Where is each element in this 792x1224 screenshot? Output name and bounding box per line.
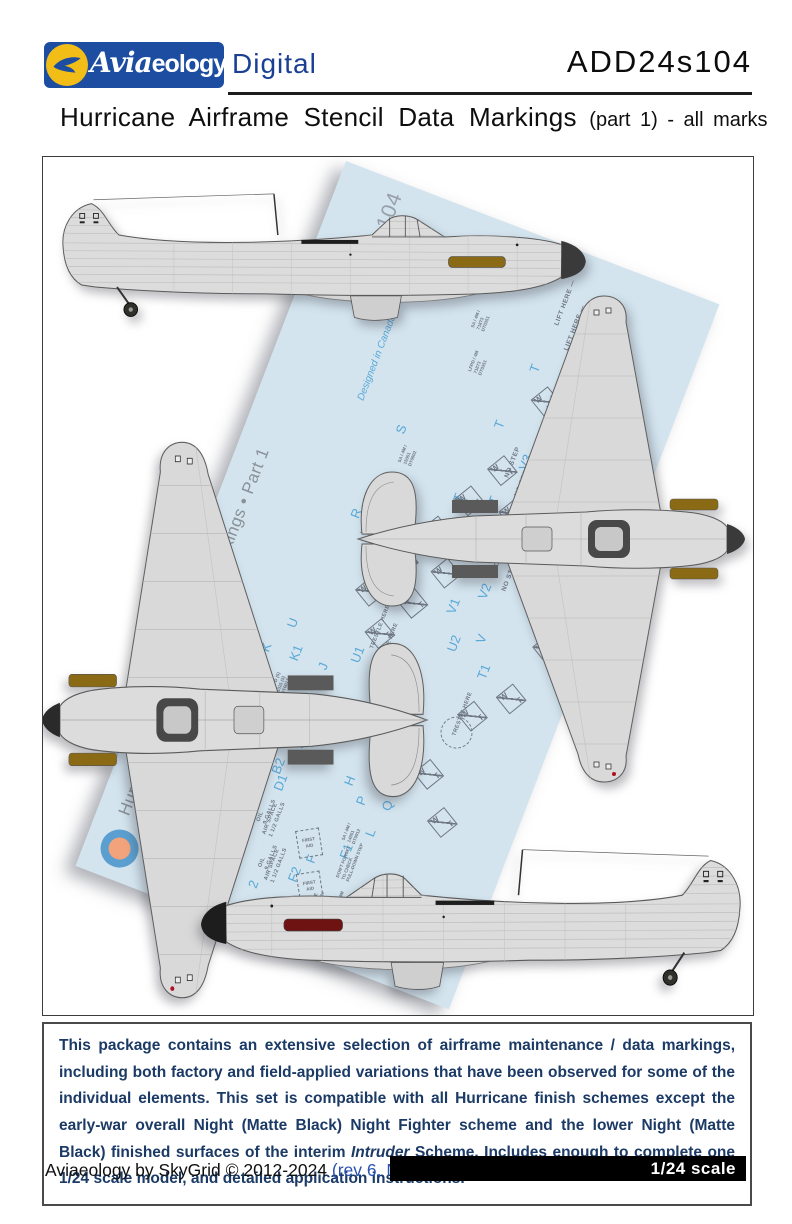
header-rule xyxy=(228,92,752,95)
bird-icon xyxy=(50,48,84,82)
aircraft-side-view-bottom xyxy=(201,841,747,1009)
logo-wordmark: Aviaeology xyxy=(90,46,226,79)
product-image: Hurricane Airframe Stencil Data Markings… xyxy=(42,156,754,1016)
page-title-sub: (part 1) - all marks xyxy=(589,109,767,131)
product-code: ADD24s104 xyxy=(567,44,752,80)
wt-stencil-box: WT xyxy=(427,807,458,838)
logo-script: Avia xyxy=(90,46,152,79)
footer-credit-text: Aviaeology by SkyGrid © 2012-2024 xyxy=(45,1160,332,1180)
page-title-main: Hurricane Airframe Stencil Data Markings xyxy=(60,102,577,132)
scale-label: 1/24 scale xyxy=(651,1159,736,1179)
description-part1: This package contains an extensive selec… xyxy=(59,1037,735,1161)
page-title: Hurricane Airframe Stencil Data Markings… xyxy=(60,102,760,133)
logo-suffix: Digital xyxy=(232,48,317,80)
aircraft-side-view-top xyxy=(56,186,586,338)
scale-bar: 1/24 scale xyxy=(390,1156,746,1181)
logo-rest: eology xyxy=(152,50,227,78)
logo-bird-badge xyxy=(46,44,88,86)
aviaeology-logo: Aviaeology xyxy=(44,42,224,88)
